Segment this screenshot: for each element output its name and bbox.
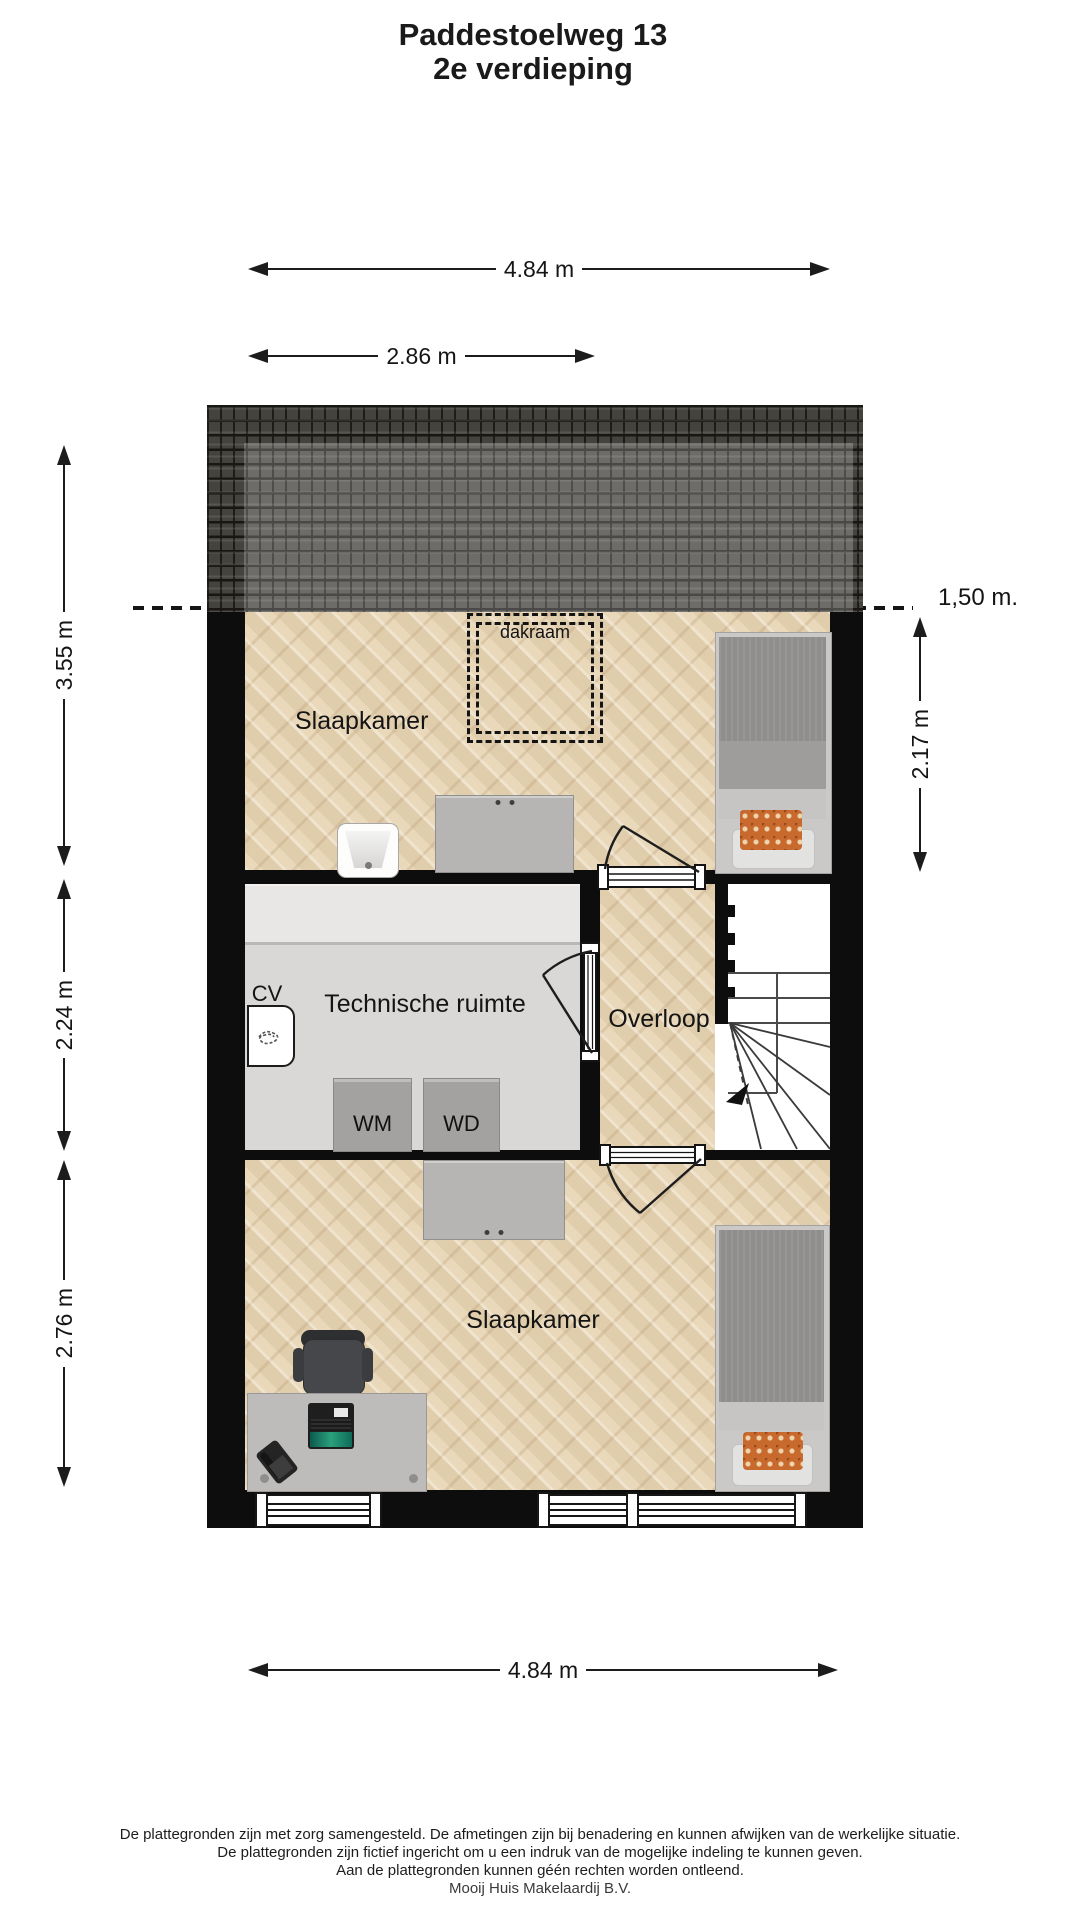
- dimension-label: 4.84 m: [500, 1657, 586, 1684]
- dimension-left-middle: 2.24 m: [50, 879, 78, 1151]
- address-title: Paddestoelweg 13: [0, 18, 1066, 52]
- arrow-down-icon: [57, 1131, 71, 1151]
- arrow-right-icon: [575, 349, 595, 363]
- stair-winders: [730, 1023, 830, 1149]
- dimension-label: 3.55 m: [51, 612, 78, 698]
- floor-plan: dakraam Slaapkamer CV Technische ruimte …: [207, 405, 863, 1528]
- disclaimer-line: De plattegronden zijn fictief ingericht …: [0, 1844, 1080, 1862]
- dimension-label: 2.17 m: [907, 701, 934, 787]
- arrow-right-icon: [810, 262, 830, 276]
- dimension-label: 2.86 m: [378, 343, 464, 370]
- arrow-down-icon: [57, 1467, 71, 1487]
- door-top-bedroom: [598, 826, 705, 889]
- dimension-label: 4.84 m: [496, 256, 582, 283]
- disclaimer: De plattegronden zijn met zorg samengest…: [0, 1826, 1080, 1898]
- dimension-label: 2.24 m: [51, 972, 78, 1058]
- dimension-top-inner-width: 2.86 m: [248, 344, 595, 368]
- disclaimer-line: De plattegronden zijn met zorg samengest…: [0, 1826, 1080, 1844]
- doors-and-stairs-overlay: [207, 405, 863, 1528]
- arrow-left-icon: [248, 1663, 268, 1677]
- door-bottom-bedroom: [600, 1145, 705, 1213]
- dimension-top-width: 4.84 m: [248, 257, 830, 281]
- arrow-right-icon: [818, 1663, 838, 1677]
- headroom-label: 1,50 m.: [938, 584, 1018, 612]
- arrow-up-icon: [913, 617, 927, 637]
- arrow-left-icon: [248, 349, 268, 363]
- floor-subtitle: 2e verdieping: [0, 52, 1066, 86]
- arrow-down-icon: [57, 846, 71, 866]
- arrow-up-icon: [57, 445, 71, 465]
- dimension-bottom-width: 4.84 m: [248, 1658, 838, 1682]
- page-title: Paddestoelweg 13 2e verdieping: [0, 18, 1066, 86]
- dimension-left-upper: 3.55 m: [50, 445, 78, 866]
- door-technical-room: [543, 943, 599, 1061]
- arrow-up-icon: [57, 879, 71, 899]
- dimension-left-lower: 2.76 m: [50, 1160, 78, 1487]
- dimension-right-bedroom-depth: 2.17 m: [906, 617, 934, 872]
- agency-name: Mooij Huis Makelaardij B.V.: [0, 1880, 1080, 1898]
- dimension-label: 2.76 m: [51, 1280, 78, 1366]
- arrow-left-icon: [248, 262, 268, 276]
- arrow-down-icon: [913, 852, 927, 872]
- arrow-up-icon: [57, 1160, 71, 1180]
- disclaimer-line: Aan de plattegronden kunnen géén rechten…: [0, 1862, 1080, 1880]
